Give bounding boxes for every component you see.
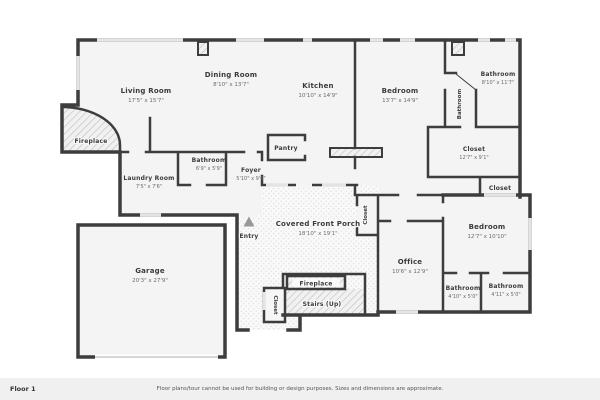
room-label-foyer: Foyer xyxy=(241,167,261,174)
room-label-kitchen: Kitchen xyxy=(302,82,333,90)
label-fireplace-bottom: Fireplace xyxy=(299,281,332,288)
room-dims-closet-large: 12'7" x 9'1" xyxy=(459,155,488,161)
chimney-top-right xyxy=(452,42,464,55)
room-label-closet-large: Closet xyxy=(463,146,485,153)
label-fireplace-left: Fireplace xyxy=(74,138,107,145)
room-label-living: Living Room xyxy=(121,87,172,95)
room-dims-bathroom-mid: 6'9" x 5'9" xyxy=(196,166,222,172)
room-label-bathroom-mid: Bathroom xyxy=(192,157,227,164)
room-dims-bathroom-bl: 4'10" x 5'0" xyxy=(448,294,477,300)
room-dims-bathroom-top: 8'10" x 11'7" xyxy=(482,80,515,86)
room-label-laundry: Laundry Room xyxy=(123,175,174,182)
room-dims-foyer: 5'10" x 9'6" xyxy=(236,176,265,182)
room-dims-kitchen: 10'10" x 14'9" xyxy=(298,93,337,99)
room-dims-bedroom-top: 13'7" x 14'9" xyxy=(382,98,418,104)
room-label-bedroom-right: Bedroom xyxy=(469,223,506,231)
room-label-bathroom-bl: Bathroom xyxy=(446,285,481,292)
room-dims-dining: 8'10" x 13'7" xyxy=(213,82,249,88)
room-label-garage: Garage xyxy=(135,267,165,275)
room-label-porch: Covered Front Porch xyxy=(276,220,361,228)
room-label-office: Office xyxy=(398,258,423,266)
room-label-bathroom-top-small: Bathroom xyxy=(457,89,463,120)
label-stairs: Stairs (Up) xyxy=(303,301,342,308)
chimney-top-left xyxy=(198,42,208,55)
room-dims-office: 10'6" x 12'9" xyxy=(392,269,428,275)
room-label-closet-small: Closet xyxy=(489,185,511,192)
room-dims-bathroom-br: 4'11" x 5'0" xyxy=(491,292,520,298)
footer-bar: Floor 1 Floor plans/tour cannot be used … xyxy=(0,378,600,400)
room-label-closet-stairs: Closet xyxy=(272,295,278,315)
room-label-bathroom-top: Bathroom xyxy=(481,71,516,78)
room-label-bathroom-br: Bathroom xyxy=(489,283,524,290)
room-dims-garage: 20'3" x 27'9" xyxy=(132,278,168,284)
disclaimer-text: Floor plans/tour cannot be used for buil… xyxy=(0,386,600,392)
room-dims-laundry: 7'5" x 7'6" xyxy=(136,184,162,190)
room-dims-living: 17'5" x 15'7" xyxy=(128,98,164,104)
room-label-pantry: Pantry xyxy=(274,145,298,152)
room-label-dining: Dining Room xyxy=(205,71,258,79)
room-label-closet-porch: Closet xyxy=(363,205,369,225)
room-dims-porch: 18'10" x 19'1" xyxy=(298,231,337,237)
room-dims-bedroom-right: 12'7" x 10'10" xyxy=(467,234,506,240)
kitchen-counter xyxy=(330,148,382,157)
room-label-bedroom-top: Bedroom xyxy=(382,87,419,95)
room-label-entry: Entry xyxy=(239,233,258,240)
floor-plan: Living Room 17'5" x 15'7" Dining Room 8'… xyxy=(0,0,600,378)
